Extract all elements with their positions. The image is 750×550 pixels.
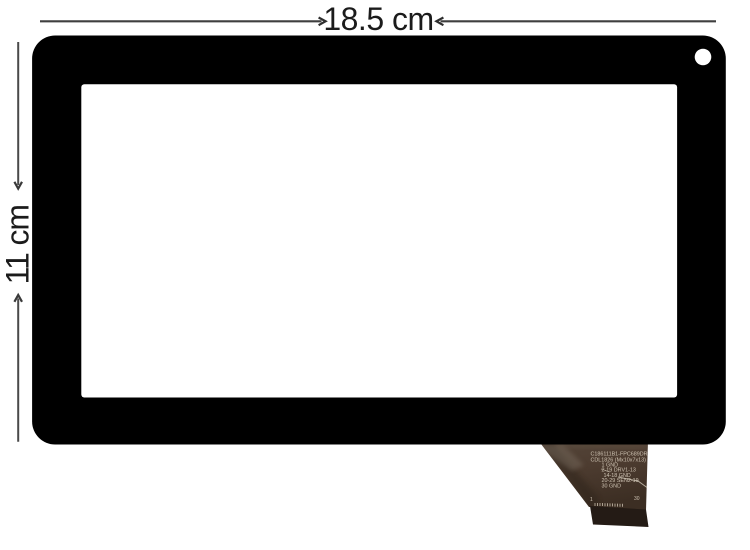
svg-text:CDL1826 (Mx10x7x13): CDL1826 (Mx10x7x13)	[591, 457, 647, 463]
svg-text:1: 1	[590, 497, 593, 503]
svg-text:11 cm: 11 cm	[0, 205, 36, 284]
svg-text:30: 30	[634, 496, 640, 502]
svg-text:18.5 cm: 18.5 cm	[323, 1, 433, 37]
svg-text:30 GND: 30 GND	[602, 483, 622, 489]
